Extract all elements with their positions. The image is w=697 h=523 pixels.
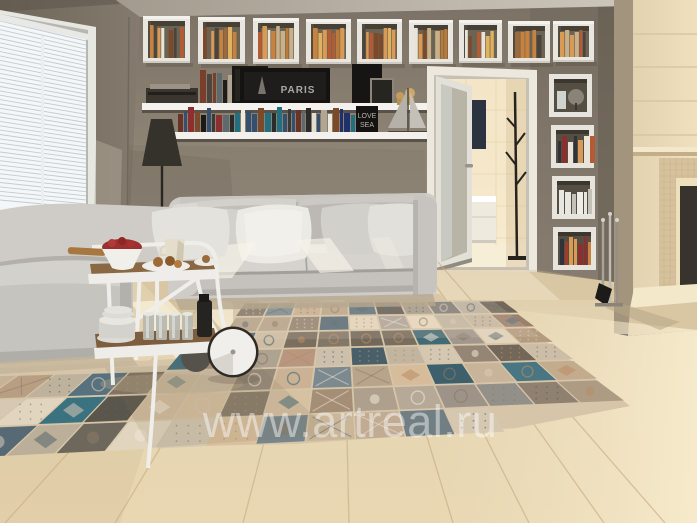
svg-text:PARIS: PARIS (281, 85, 316, 96)
svg-text:www.artreal.ru: www.artreal.ru (202, 396, 498, 447)
svg-text:LOVE: LOVE (358, 113, 377, 120)
svg-text:SEA: SEA (360, 122, 374, 129)
